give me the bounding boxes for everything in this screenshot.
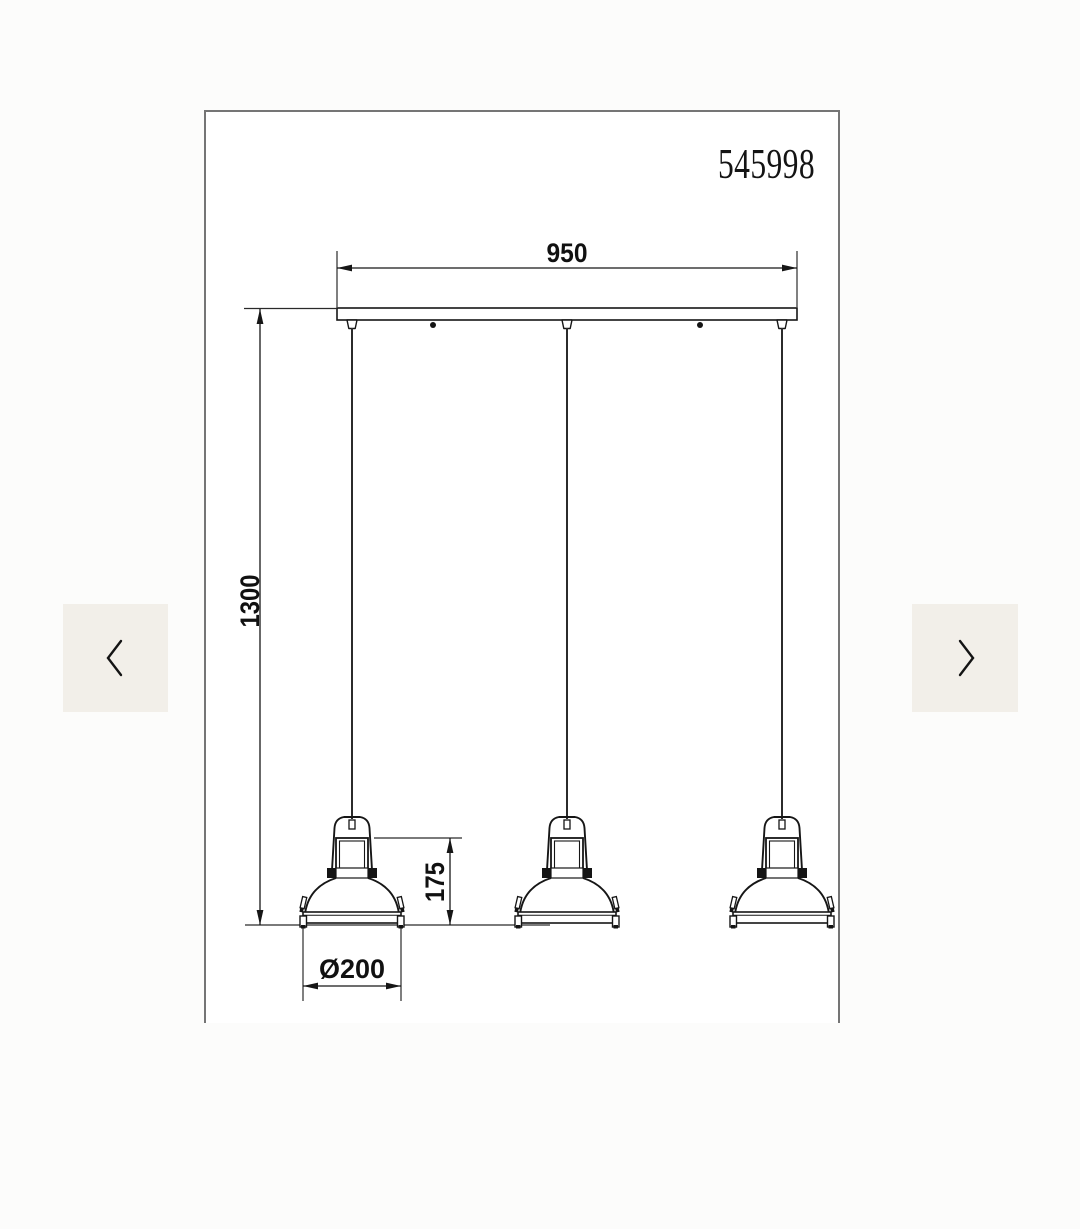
dimension-label-diameter: Ø200 — [319, 954, 385, 984]
carousel-next-button[interactable] — [912, 604, 1018, 712]
dimension-label-1300: 1300 — [235, 575, 265, 628]
pendant-lamp-2 — [514, 320, 620, 929]
mounting-screw — [430, 322, 436, 328]
pendant-lamp-1 — [299, 320, 405, 929]
pendant-lamp-3 — [729, 320, 835, 929]
product-image-viewer: 545998 950 — [0, 0, 1080, 1229]
chevron-right-icon — [953, 638, 977, 678]
dimension-label-175: 175 — [420, 862, 450, 902]
carousel-prev-button[interactable] — [63, 604, 168, 712]
product-number: 545998 — [718, 142, 815, 188]
chevron-left-icon — [104, 638, 128, 678]
technical-drawing: 545998 950 — [206, 112, 838, 1023]
dimension-track-width: 950 — [337, 238, 797, 307]
technical-drawing-frame: 545998 950 — [204, 110, 840, 1023]
mounting-screw — [697, 322, 703, 328]
dimension-drop-height: 1300 — [235, 309, 337, 926]
dimension-shade-diameter: Ø200 — [303, 927, 401, 1001]
dimension-label-950: 950 — [547, 238, 588, 268]
